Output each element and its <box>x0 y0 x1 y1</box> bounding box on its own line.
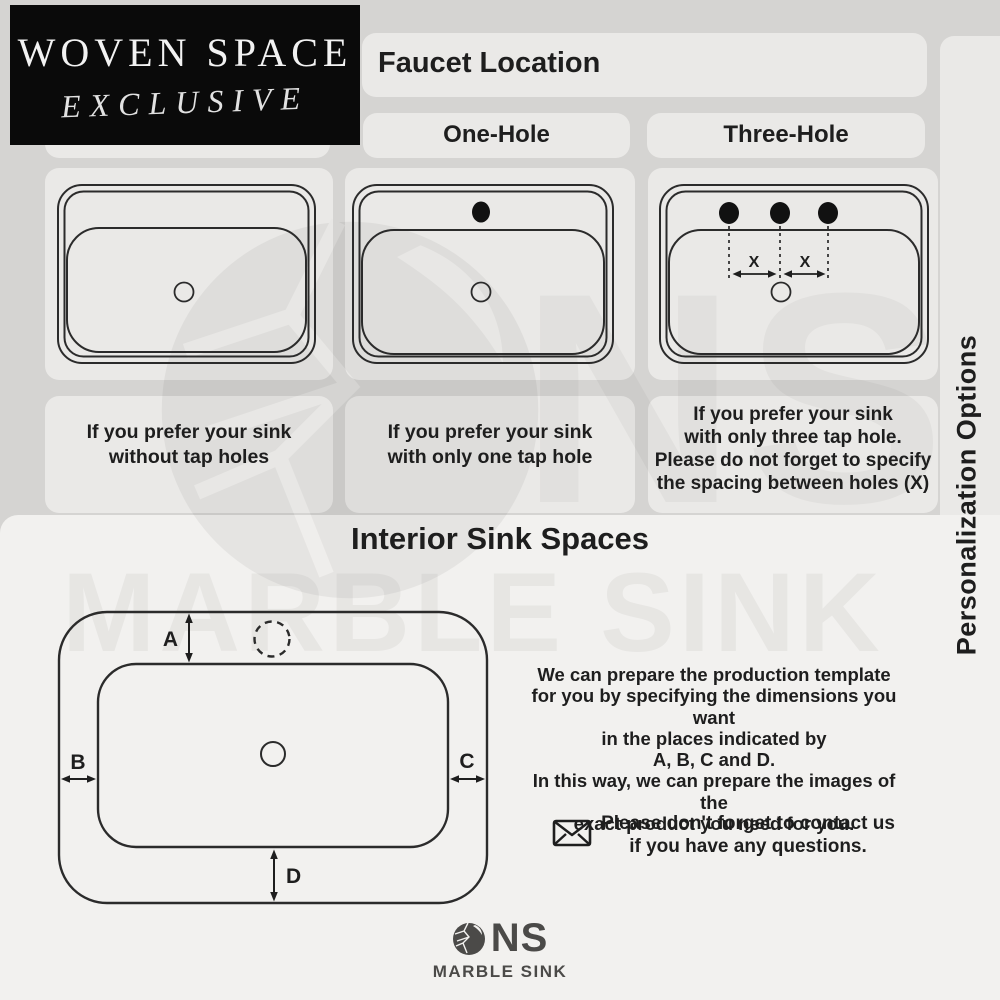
spacing-arrow-right <box>784 270 826 278</box>
sink-diagram-three-hole: X X <box>648 168 938 380</box>
sink-basin <box>67 228 306 352</box>
dimension-label-a: A <box>163 628 178 651</box>
envelope-icon <box>552 819 592 847</box>
dimension-label-d: D <box>286 865 301 888</box>
contact-line: Please don't forget to contact us <box>598 812 898 835</box>
drain-hole <box>472 283 491 302</box>
spacing-label-right: X <box>800 254 811 271</box>
contact-note: Please don't forget to contact us if you… <box>518 810 910 866</box>
three-hole-label: Three-Hole <box>647 121 925 149</box>
caption-line: with only one tap hole <box>345 445 635 470</box>
footer-initials: NS <box>491 916 549 961</box>
dimension-arrow-b <box>61 775 96 783</box>
sink-basin <box>362 230 604 354</box>
spacing-arrow-left <box>733 270 777 278</box>
caption-line: without tap holes <box>45 445 333 470</box>
description-line: We can prepare the production template <box>518 664 910 685</box>
drain-hole <box>261 742 285 766</box>
brand-name: WOVEN SPACE <box>18 29 353 76</box>
faucet-hole-dashed <box>255 622 290 657</box>
marble-ball-icon <box>452 922 486 956</box>
drain-hole <box>772 283 791 302</box>
personalization-options-banner: Personalization Options <box>952 335 983 656</box>
dimension-arrow-d <box>270 850 278 902</box>
description-line: in the places indicated by <box>518 728 910 749</box>
sink-diagram-no-hole <box>45 168 333 380</box>
caption-no-hole: If you prefer your sink without tap hole… <box>45 420 333 470</box>
caption-three-hole: If you prefer your sink with only three … <box>644 403 942 495</box>
dimension-arrow-c <box>450 775 485 783</box>
description-line: In this way, we can prepare the images o… <box>518 770 910 813</box>
tap-hole-right <box>818 202 838 224</box>
footer-brand-name: MARBLE SINK <box>400 962 600 982</box>
sink-basin <box>98 664 448 847</box>
caption-line: If you prefer your sink <box>345 420 635 445</box>
tap-hole-left <box>719 202 739 224</box>
one-hole-label: One-Hole <box>363 121 630 149</box>
infographic-canvas: NS MARBLE SINK WOVEN SPACE EXCLUSIVE Fau… <box>0 0 1000 1000</box>
drain-hole <box>175 283 194 302</box>
caption-line: If you prefer your sink <box>45 420 333 445</box>
sink-inner-rim <box>65 192 309 357</box>
interior-sink-spaces-title: Interior Sink Spaces <box>0 521 1000 557</box>
dimension-diagram: A B C D <box>55 605 500 915</box>
description-line: for you by specifying the dimensions you… <box>518 685 910 728</box>
sink-outer-rim <box>58 185 315 363</box>
brand-box: WOVEN SPACE EXCLUSIVE <box>10 5 360 145</box>
footer-logo: NS MARBLE SINK <box>400 916 600 982</box>
caption-line: with only three tap hole. <box>644 426 942 449</box>
caption-one-hole: If you prefer your sink with only one ta… <box>345 420 635 470</box>
contact-text: Please don't forget to contact us if you… <box>598 812 898 858</box>
caption-line: Please do not forget to specify <box>644 449 942 472</box>
caption-line: If you prefer your sink <box>644 403 942 426</box>
faucet-location-title: Faucet Location <box>378 47 600 80</box>
dimension-arrow-a <box>185 614 193 663</box>
contact-line: if you have any questions. <box>598 835 898 858</box>
sink-basin <box>669 230 919 354</box>
sink-diagram-one-hole <box>345 168 635 380</box>
caption-line: the spacing between holes (X) <box>644 472 942 495</box>
dimension-description: We can prepare the production template f… <box>518 664 910 834</box>
tap-hole-center <box>770 202 790 224</box>
description-line: A, B, C and D. <box>518 749 910 770</box>
brand-tagline: EXCLUSIVE <box>60 80 309 126</box>
dimension-label-c: C <box>459 750 474 773</box>
dimension-label-b: B <box>70 751 85 774</box>
tap-hole <box>472 202 490 223</box>
spacing-label-left: X <box>749 254 760 271</box>
